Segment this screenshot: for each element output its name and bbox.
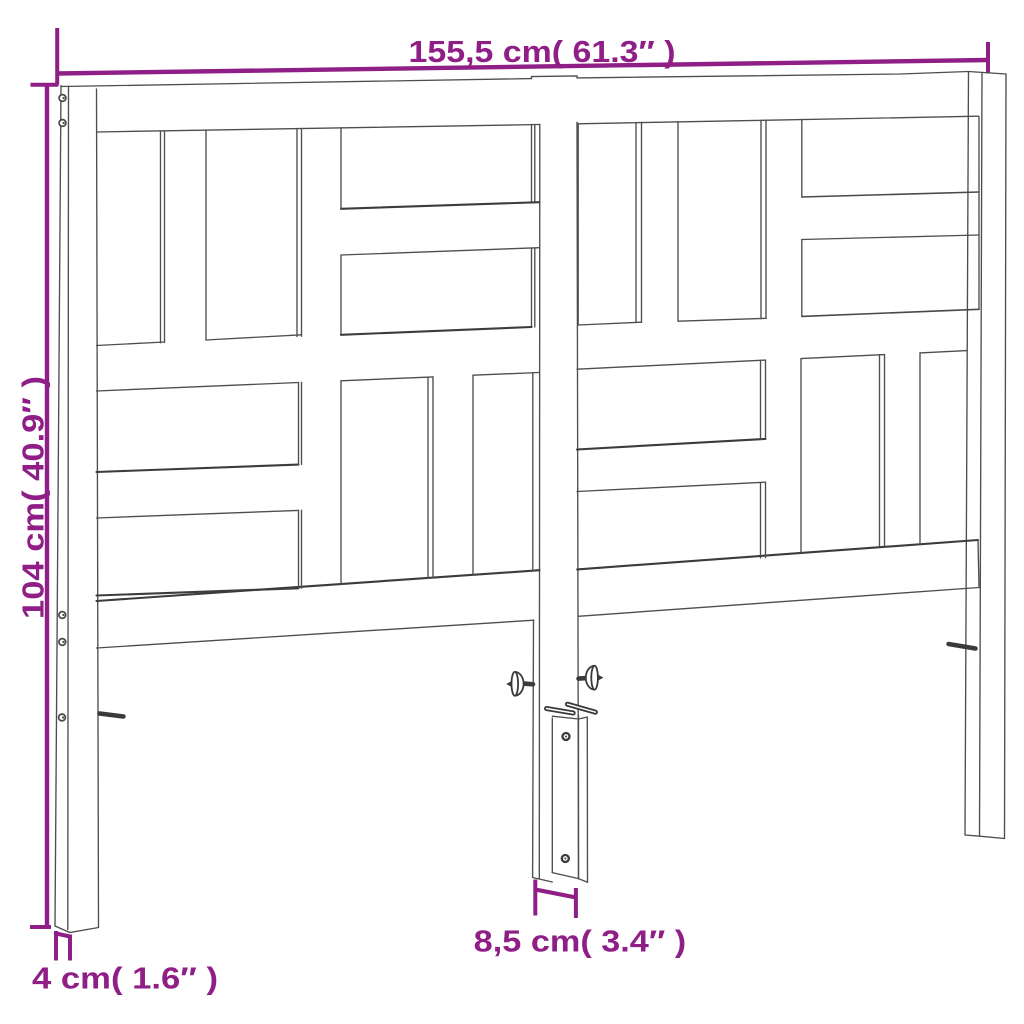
svg-text:155,5 cm( 61.3″ ): 155,5 cm( 61.3″ ): [409, 34, 676, 69]
svg-text:4 cm( 1.6″ ): 4 cm( 1.6″ ): [32, 961, 218, 996]
svg-text:104 cm( 40.9″ ): 104 cm( 40.9″ ): [16, 376, 51, 619]
svg-text:8,5 cm( 3.4″ ): 8,5 cm( 3.4″ ): [474, 923, 687, 958]
